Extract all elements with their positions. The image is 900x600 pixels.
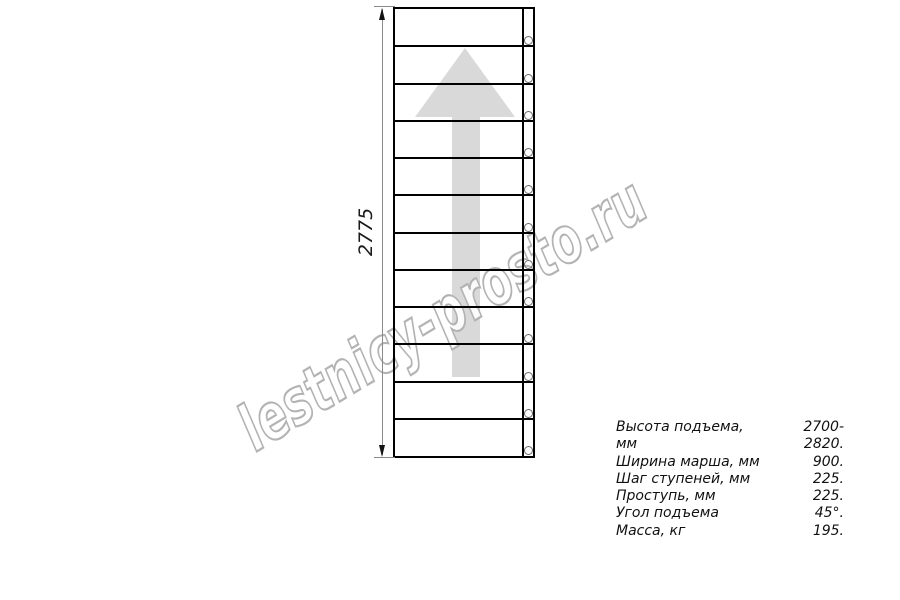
spec-label: Масса, кг [616,523,685,540]
spec-value: 900. [813,454,844,471]
bolt-circle-icon [524,260,533,269]
dimension-arrowhead-up-icon [379,8,385,20]
spec-label: Шаг ступеней, мм [616,471,750,488]
bolt-circle-icon [524,446,533,455]
bolt-circle-icon [524,111,533,120]
staircase-drawing-canvas: lestnicy-prosto.ru 2775 Высота подъема, … [0,0,900,600]
step-edge-line [395,343,533,345]
spec-value: 45°. [815,505,844,522]
spec-label: Высота подъема, мм [616,419,765,454]
bolt-circle-icon [524,297,533,306]
step-edge-line [395,418,533,420]
spec-label: Проступь, мм [616,488,716,505]
spec-row: Угол подъема45°. [616,505,844,522]
spec-label: Ширина марша, мм [616,454,760,471]
step-edge-line [395,381,533,383]
spec-row: Высота подъема, мм2700-2820. [616,419,844,454]
spec-value: 195. [813,523,844,540]
bolt-circle-icon [524,223,533,232]
step-edge-line [395,232,533,234]
step-edge-line [395,157,533,159]
bolt-circle-icon [524,148,533,157]
spec-row: Масса, кг195. [616,523,844,540]
step-edge-line [395,120,533,122]
bolt-circle-icon [524,185,533,194]
dimension-extension-bottom [374,457,395,458]
specs-table: Высота подъема, мм2700-2820.Ширина марша… [616,419,844,540]
spec-row: Проступь, мм225. [616,488,844,505]
dimension-extension-top [374,6,395,7]
spec-value: 225. [813,488,844,505]
spec-value: 2700-2820. [765,419,844,454]
spec-row: Шаг ступеней, мм225. [616,471,844,488]
spec-label: Угол подъема [616,505,719,522]
bolt-circle-icon [524,372,533,381]
staircase-plan [393,7,535,458]
step-edge-line [395,194,533,196]
spec-row: Ширина марша, мм900. [616,454,844,471]
dimension-line [382,9,383,455]
bolt-circle-icon [524,334,533,343]
spec-value: 225. [813,471,844,488]
bolt-circle-icon [524,74,533,83]
step-edge-line [395,306,533,308]
step-edge-line [395,83,533,85]
step-edge-line [395,269,533,271]
bolt-circle-icon [524,409,533,418]
dimension-value: 2775 [355,208,377,256]
dimension-arrowhead-down-icon [379,445,385,457]
bolt-circle-icon [524,36,533,45]
step-edge-line [395,45,533,47]
